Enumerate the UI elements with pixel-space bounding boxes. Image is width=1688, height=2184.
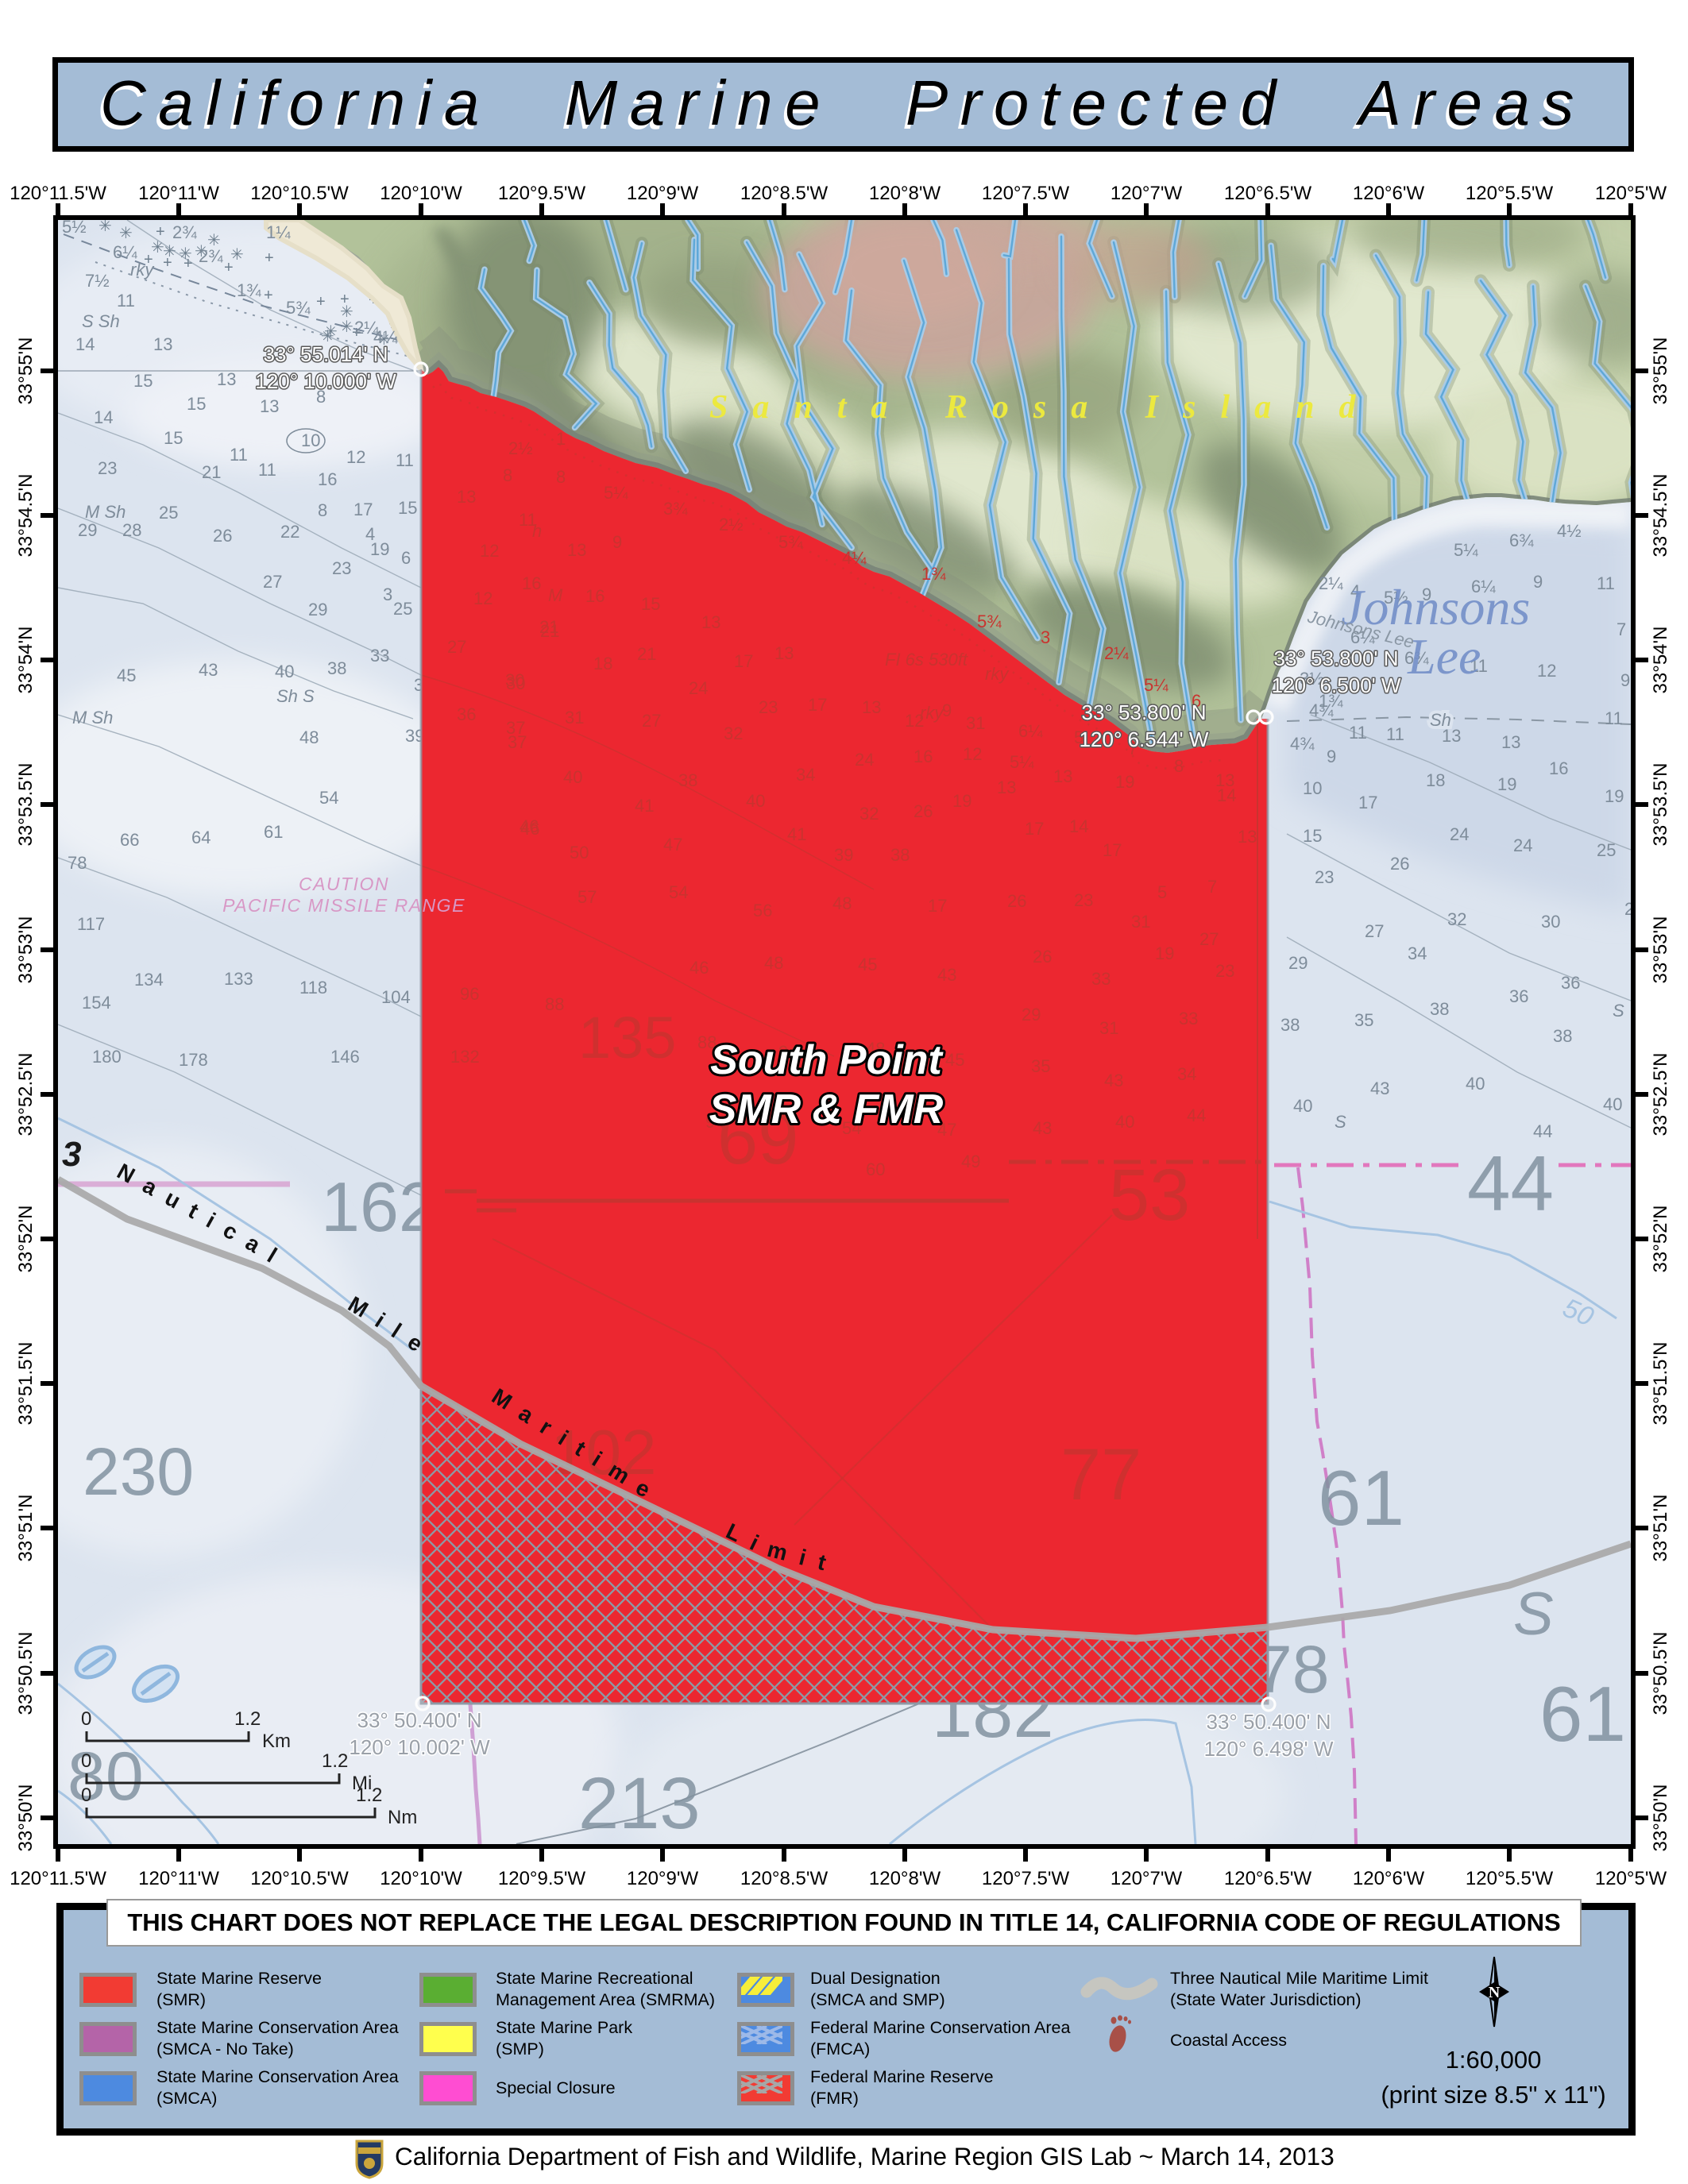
svg-text:29: 29 <box>1624 899 1631 919</box>
svg-text:27: 27 <box>447 637 466 657</box>
svg-text:120° 10.000' W: 120° 10.000' W <box>255 369 396 393</box>
svg-text:38: 38 <box>1553 1026 1572 1046</box>
svg-text:61: 61 <box>264 822 283 842</box>
svg-text:146: 146 <box>330 1047 360 1067</box>
svg-text:50: 50 <box>570 843 589 862</box>
svg-text:32: 32 <box>859 804 879 824</box>
svg-text:40: 40 <box>1293 1096 1312 1116</box>
svg-text:6¼: 6¼ <box>1018 721 1043 741</box>
svg-text:25: 25 <box>393 599 412 619</box>
svg-text:30: 30 <box>1541 912 1560 932</box>
svg-text:120° 6.544' W: 120° 6.544' W <box>1080 727 1209 751</box>
svg-text:49: 49 <box>961 1152 980 1171</box>
svg-text:11: 11 <box>230 445 248 465</box>
svg-text:120° 6.500' W: 120° 6.500' W <box>1272 673 1401 697</box>
svg-text:1: 1 <box>556 429 566 449</box>
svg-text:45: 45 <box>117 666 136 685</box>
svg-text:32: 32 <box>724 723 743 743</box>
svg-text:21: 21 <box>637 644 656 664</box>
svg-text:12: 12 <box>473 588 492 608</box>
svg-text:12: 12 <box>1537 661 1556 681</box>
svg-text:13: 13 <box>153 334 172 354</box>
svg-text:2½: 2½ <box>508 438 533 458</box>
svg-text:32: 32 <box>1447 909 1466 929</box>
svg-text:53: 53 <box>1109 1155 1190 1236</box>
svg-text:11: 11 <box>396 450 414 470</box>
svg-text:29: 29 <box>308 600 327 619</box>
svg-text:64: 64 <box>191 828 211 847</box>
svg-text:+: + <box>265 249 274 267</box>
svg-text:25: 25 <box>159 503 178 523</box>
svg-text:54: 54 <box>319 788 338 808</box>
svg-text:43: 43 <box>937 965 956 985</box>
svg-text:17: 17 <box>808 695 827 715</box>
svg-text:15: 15 <box>187 394 206 414</box>
svg-text:rky: rky <box>130 260 155 280</box>
svg-text:23: 23 <box>1074 890 1093 910</box>
svg-text:13: 13 <box>457 487 476 507</box>
svg-text:8: 8 <box>318 500 327 520</box>
svg-text:23: 23 <box>759 697 778 717</box>
svg-text:38: 38 <box>890 845 910 865</box>
svg-text:2¾: 2¾ <box>172 222 197 242</box>
svg-text:2¼: 2¼ <box>1319 573 1343 593</box>
svg-text:23: 23 <box>332 558 351 578</box>
svg-text:6¾: 6¾ <box>1509 531 1534 550</box>
svg-text:27: 27 <box>263 572 282 592</box>
svg-text:2½: 2½ <box>719 515 744 534</box>
svg-text:11: 11 <box>258 460 276 480</box>
svg-text:+: + <box>264 287 273 304</box>
svg-text:19: 19 <box>1605 786 1624 806</box>
svg-text:26: 26 <box>914 801 933 821</box>
svg-text:16: 16 <box>318 469 337 489</box>
svg-text:FI 6s 530ft: FI 6s 530ft <box>885 650 968 669</box>
svg-text:47: 47 <box>663 835 682 855</box>
svg-text:36: 36 <box>457 704 476 724</box>
svg-text:19: 19 <box>1155 943 1174 963</box>
svg-text:2¼: 2¼ <box>1104 643 1129 663</box>
svg-text:134: 134 <box>134 970 164 990</box>
svg-text:1¼: 1¼ <box>266 222 291 242</box>
svg-text:29: 29 <box>1288 953 1308 973</box>
svg-text:14: 14 <box>94 407 113 427</box>
svg-text:60: 60 <box>866 1160 885 1179</box>
svg-text:15: 15 <box>133 371 153 391</box>
svg-text:43: 43 <box>1104 1071 1123 1090</box>
svg-text:S Sh: S Sh <box>82 311 120 331</box>
svg-text:21: 21 <box>539 617 558 637</box>
svg-text:34: 34 <box>1408 943 1427 963</box>
svg-text:8: 8 <box>1174 756 1184 776</box>
svg-text:13: 13 <box>1442 726 1461 746</box>
svg-text:38: 38 <box>327 658 346 678</box>
svg-text:24: 24 <box>1450 824 1469 844</box>
svg-text:33° 55.014' N: 33° 55.014' N <box>263 342 388 366</box>
svg-text:0: 0 <box>81 1708 91 1730</box>
svg-text:11: 11 <box>1386 724 1404 744</box>
svg-text:5: 5 <box>1157 882 1167 902</box>
svg-text:33° 50.400' N: 33° 50.400' N <box>357 1708 481 1732</box>
svg-text:14: 14 <box>1069 816 1088 836</box>
svg-text:13: 13 <box>1238 827 1257 847</box>
svg-text:21: 21 <box>202 462 221 482</box>
svg-text:11: 11 <box>1349 723 1367 743</box>
svg-text:22: 22 <box>280 522 299 542</box>
svg-text:29: 29 <box>1022 1005 1041 1024</box>
svg-text:11: 11 <box>117 291 135 311</box>
svg-text:23: 23 <box>98 458 117 478</box>
svg-text:40: 40 <box>746 791 765 811</box>
svg-text:66: 66 <box>120 830 139 850</box>
svg-text:40: 40 <box>1466 1074 1485 1094</box>
svg-text:41: 41 <box>787 824 806 844</box>
svg-text:33: 33 <box>1091 969 1111 989</box>
svg-text:24: 24 <box>1513 835 1532 855</box>
svg-text:61: 61 <box>1539 1670 1626 1758</box>
svg-text:61: 61 <box>1318 1454 1404 1542</box>
svg-text:23: 23 <box>1215 961 1234 981</box>
svg-text:120° 6.498' W: 120° 6.498' W <box>1204 1737 1334 1761</box>
svg-text:40: 40 <box>275 662 294 681</box>
svg-text:118: 118 <box>299 978 327 997</box>
svg-text:48: 48 <box>299 727 319 747</box>
svg-text:19: 19 <box>952 791 971 811</box>
svg-text:5¾: 5¾ <box>286 298 311 318</box>
svg-text:2¾: 2¾ <box>199 246 223 266</box>
svg-text:57: 57 <box>577 887 597 907</box>
svg-text:117: 117 <box>77 914 105 934</box>
svg-text:213: 213 <box>578 1763 701 1844</box>
svg-text:3¾: 3¾ <box>663 499 688 519</box>
svg-text:10: 10 <box>1303 778 1322 798</box>
svg-text:38: 38 <box>1280 1015 1300 1035</box>
svg-text:132: 132 <box>450 1047 480 1067</box>
svg-text:43: 43 <box>1370 1078 1389 1098</box>
svg-text:13: 13 <box>997 778 1016 797</box>
svg-text:43: 43 <box>199 660 218 680</box>
svg-text:36: 36 <box>1561 973 1580 993</box>
svg-text:27: 27 <box>1199 929 1219 949</box>
svg-text:38: 38 <box>678 770 697 790</box>
svg-text:Santa Rosa Island: Santa Rosa Island <box>709 389 1380 426</box>
svg-text:+: + <box>163 254 172 272</box>
svg-text:40: 40 <box>563 767 582 787</box>
svg-text:rky: rky <box>985 664 1010 684</box>
svg-text:41: 41 <box>635 796 654 816</box>
svg-text:120° 10.002' W: 120° 10.002' W <box>349 1735 490 1759</box>
svg-text:33° 53.800' N: 33° 53.800' N <box>1081 700 1206 724</box>
svg-text:7: 7 <box>1617 619 1626 639</box>
svg-text:48: 48 <box>764 953 783 973</box>
svg-text:11: 11 <box>1597 573 1615 593</box>
svg-text:26: 26 <box>1007 891 1026 911</box>
svg-text:13: 13 <box>260 396 279 416</box>
svg-text:154: 154 <box>82 993 111 1013</box>
svg-text:11: 11 <box>1605 708 1623 728</box>
svg-text:M Sh: M Sh <box>72 708 113 727</box>
svg-text:16: 16 <box>1549 758 1568 778</box>
svg-text:133: 133 <box>224 969 253 989</box>
svg-text:4¼: 4¼ <box>842 548 867 568</box>
svg-text:17: 17 <box>1358 793 1377 812</box>
svg-text:5¾: 5¾ <box>778 532 803 552</box>
svg-text:30: 30 <box>505 670 524 690</box>
svg-text:40: 40 <box>1603 1094 1622 1114</box>
svg-text:15: 15 <box>641 594 660 614</box>
svg-text:S: S <box>1335 1112 1346 1132</box>
svg-text:9: 9 <box>1620 670 1630 690</box>
svg-text:6: 6 <box>401 548 411 568</box>
svg-text:31: 31 <box>1131 912 1150 932</box>
svg-text:Km: Km <box>262 1731 291 1752</box>
svg-text:4½: 4½ <box>1557 521 1582 541</box>
svg-text:104: 104 <box>381 987 411 1007</box>
svg-text:31: 31 <box>966 713 985 733</box>
svg-text:15: 15 <box>1303 826 1322 846</box>
svg-text:35: 35 <box>1031 1056 1050 1076</box>
svg-text:✳: ✳ <box>179 245 192 263</box>
svg-text:16: 16 <box>522 573 541 593</box>
svg-text:1.2: 1.2 <box>356 1785 382 1806</box>
svg-text:8: 8 <box>503 465 512 485</box>
svg-text:25: 25 <box>1597 840 1616 860</box>
svg-text:13: 13 <box>217 369 236 389</box>
svg-text:S: S <box>1613 1001 1624 1021</box>
svg-text:54: 54 <box>669 882 688 902</box>
svg-text:39: 39 <box>834 845 853 865</box>
svg-text:77: 77 <box>1060 1434 1141 1515</box>
svg-text:33: 33 <box>1179 1009 1198 1028</box>
svg-text:Sh S: Sh S <box>276 686 315 706</box>
svg-text:15: 15 <box>164 428 183 448</box>
svg-text:12: 12 <box>480 541 499 561</box>
svg-text:13: 13 <box>862 697 881 717</box>
svg-text:38: 38 <box>1430 999 1449 1019</box>
svg-text:PACIFIC MISSILE RANGE: PACIFIC MISSILE RANGE <box>222 895 465 916</box>
svg-text:Lee: Lee <box>1407 628 1481 685</box>
svg-text:40: 40 <box>1115 1112 1134 1132</box>
svg-text:78: 78 <box>68 853 87 873</box>
svg-text:17: 17 <box>734 651 753 671</box>
svg-text:✳: ✳ <box>98 220 112 235</box>
svg-text:✳: ✳ <box>119 225 133 242</box>
svg-text:5¼: 5¼ <box>1454 540 1478 560</box>
svg-text:34: 34 <box>1177 1064 1196 1084</box>
svg-text:rky: rky <box>920 703 944 723</box>
svg-text:13: 13 <box>701 612 720 632</box>
svg-text:44: 44 <box>1467 1140 1554 1227</box>
svg-text:1¾: 1¾ <box>237 280 261 300</box>
svg-text:48: 48 <box>832 893 852 913</box>
svg-text:15: 15 <box>398 498 417 518</box>
svg-text:13: 13 <box>1053 766 1072 786</box>
svg-text:178: 178 <box>179 1050 208 1070</box>
svg-text:17: 17 <box>928 896 947 916</box>
svg-text:CAUTION: CAUTION <box>299 874 389 894</box>
svg-text:+: + <box>316 293 326 311</box>
svg-text:44: 44 <box>1533 1121 1552 1141</box>
svg-text:4¾: 4¾ <box>1290 734 1315 754</box>
svg-text:7: 7 <box>1207 877 1217 897</box>
svg-text:9: 9 <box>1533 572 1543 592</box>
svg-text:✳: ✳ <box>230 246 244 264</box>
svg-text:37: 37 <box>506 718 525 738</box>
svg-text:19: 19 <box>1115 772 1134 792</box>
svg-text:35: 35 <box>1354 1010 1373 1030</box>
svg-text:9: 9 <box>942 700 952 720</box>
svg-text:46: 46 <box>689 958 709 978</box>
svg-text:+: + <box>156 223 165 241</box>
svg-text:24: 24 <box>855 750 874 770</box>
svg-text:S: S <box>1513 1580 1554 1648</box>
svg-text:46: 46 <box>520 816 539 836</box>
svg-text:44: 44 <box>1187 1106 1206 1125</box>
svg-text:14: 14 <box>75 334 95 354</box>
svg-text:17: 17 <box>353 500 373 519</box>
svg-text:4: 4 <box>365 524 375 544</box>
svg-text:230: 230 <box>83 1434 194 1509</box>
svg-text:34: 34 <box>796 765 815 785</box>
svg-text:31: 31 <box>1099 1018 1118 1038</box>
svg-text:7½: 7½ <box>85 271 110 291</box>
svg-text:33° 50.400' N: 33° 50.400' N <box>1206 1710 1331 1734</box>
svg-text:16: 16 <box>914 747 933 766</box>
svg-text:45: 45 <box>858 955 877 974</box>
svg-text:26: 26 <box>1390 854 1409 874</box>
svg-text:28: 28 <box>122 520 141 540</box>
svg-text:31: 31 <box>565 708 584 727</box>
svg-text:12: 12 <box>963 744 982 764</box>
svg-text:17: 17 <box>1103 840 1122 860</box>
svg-text:26: 26 <box>1033 947 1052 967</box>
svg-text:5½: 5½ <box>62 220 87 237</box>
svg-text:18: 18 <box>593 654 612 673</box>
svg-text:18: 18 <box>1426 770 1445 790</box>
svg-text:5¼: 5¼ <box>604 483 628 503</box>
svg-text:SMR & FMR: SMR & FMR <box>709 1086 944 1133</box>
svg-text:13: 13 <box>567 540 586 560</box>
svg-text:135: 135 <box>578 1005 676 1071</box>
svg-text:26: 26 <box>213 526 232 546</box>
svg-text:3: 3 <box>383 585 392 604</box>
svg-text:29: 29 <box>78 520 97 540</box>
svg-text:1.2: 1.2 <box>322 1750 348 1772</box>
svg-text:9: 9 <box>1327 747 1336 766</box>
svg-text:19: 19 <box>1497 774 1516 794</box>
svg-text:45: 45 <box>945 1050 964 1070</box>
svg-text:N: N <box>1489 1984 1501 2001</box>
svg-text:33: 33 <box>370 646 389 666</box>
svg-text:✳: ✳ <box>340 303 353 321</box>
svg-text:96: 96 <box>460 984 479 1004</box>
svg-text:0: 0 <box>81 1750 91 1772</box>
svg-text:27: 27 <box>1365 921 1384 941</box>
svg-text:9: 9 <box>612 532 622 552</box>
svg-text:South Point: South Point <box>710 1037 944 1083</box>
svg-text:1¾: 1¾ <box>921 564 946 584</box>
svg-text:5¾: 5¾ <box>977 612 1002 631</box>
svg-text:M Sh: M Sh <box>85 502 126 522</box>
svg-text:43: 43 <box>1033 1118 1052 1138</box>
svg-text:3: 3 <box>1041 627 1050 647</box>
svg-text:27: 27 <box>642 711 661 731</box>
svg-text:M: M <box>548 585 563 605</box>
svg-text:h: h <box>532 521 542 541</box>
svg-text:17: 17 <box>1025 819 1044 839</box>
svg-text:13: 13 <box>1501 732 1520 752</box>
svg-text:12: 12 <box>346 447 365 467</box>
svg-text:36: 36 <box>1509 986 1528 1006</box>
svg-text:3: 3 <box>62 1135 81 1174</box>
svg-text:1.2: 1.2 <box>234 1708 261 1730</box>
svg-text:88: 88 <box>545 994 564 1014</box>
svg-text:56: 56 <box>753 901 772 920</box>
svg-text:16: 16 <box>585 586 605 606</box>
svg-text:13: 13 <box>774 643 794 663</box>
svg-text:5¼: 5¼ <box>1010 752 1034 772</box>
svg-text:13: 13 <box>1215 770 1234 790</box>
svg-text:8: 8 <box>556 467 566 487</box>
svg-text:180: 180 <box>92 1047 122 1067</box>
svg-text:5¼: 5¼ <box>1144 675 1168 695</box>
svg-text:10: 10 <box>301 430 320 450</box>
svg-text:0: 0 <box>81 1785 91 1806</box>
svg-text:23: 23 <box>1315 867 1334 887</box>
svg-text:33° 53.800' N: 33° 53.800' N <box>1273 646 1398 670</box>
svg-text:24: 24 <box>689 678 708 698</box>
svg-text:Nm: Nm <box>388 1807 417 1828</box>
